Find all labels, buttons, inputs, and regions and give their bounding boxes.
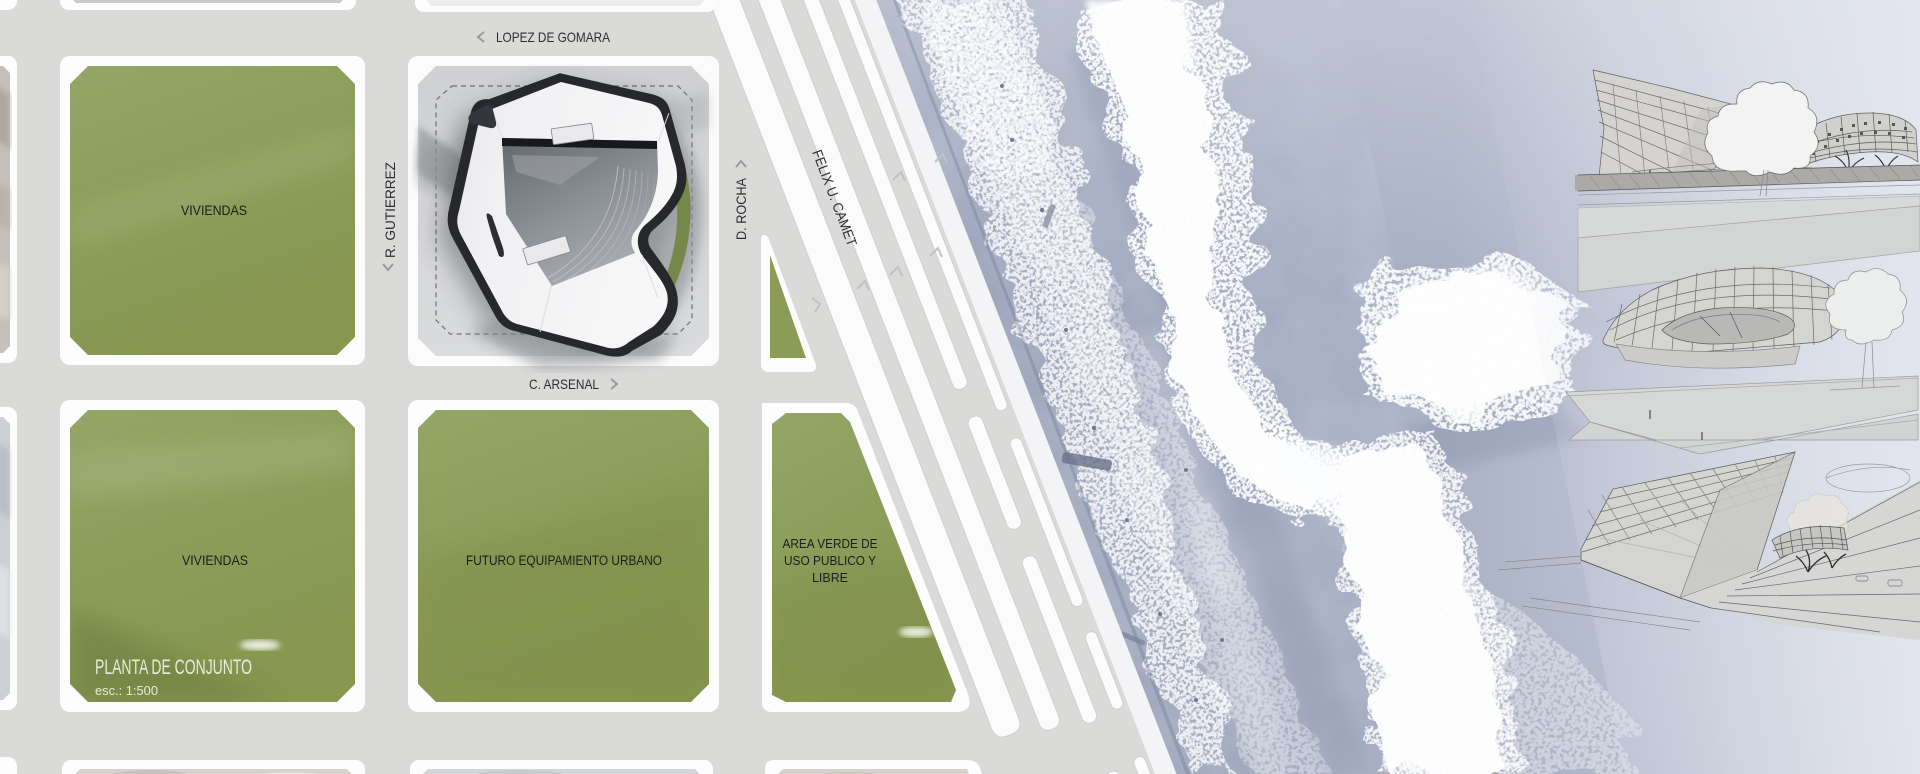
svg-text:R. GUTIERREZ: R. GUTIERREZ <box>382 162 398 258</box>
svg-text:LOPEZ DE GOMARA: LOPEZ DE GOMARA <box>496 29 611 45</box>
svg-text:LIBRE: LIBRE <box>812 570 848 585</box>
svg-text:VIVIENDAS: VIVIENDAS <box>182 553 248 568</box>
svg-text:USO PUBLICO Y: USO PUBLICO Y <box>784 553 876 568</box>
svg-text:D. ROCHA: D. ROCHA <box>733 177 749 240</box>
svg-text:AREA VERDE DE: AREA VERDE DE <box>783 536 878 551</box>
svg-text:esc.: 1:500: esc.: 1:500 <box>95 683 158 698</box>
svg-text:FUTURO EQUIPAMIENTO URBANO: FUTURO EQUIPAMIENTO URBANO <box>466 553 662 568</box>
svg-text:PLANTA DE CONJUNTO: PLANTA DE CONJUNTO <box>95 656 252 679</box>
svg-text:VIVIENDAS: VIVIENDAS <box>181 203 247 218</box>
svg-text:C. ARSENAL: C. ARSENAL <box>529 376 599 392</box>
